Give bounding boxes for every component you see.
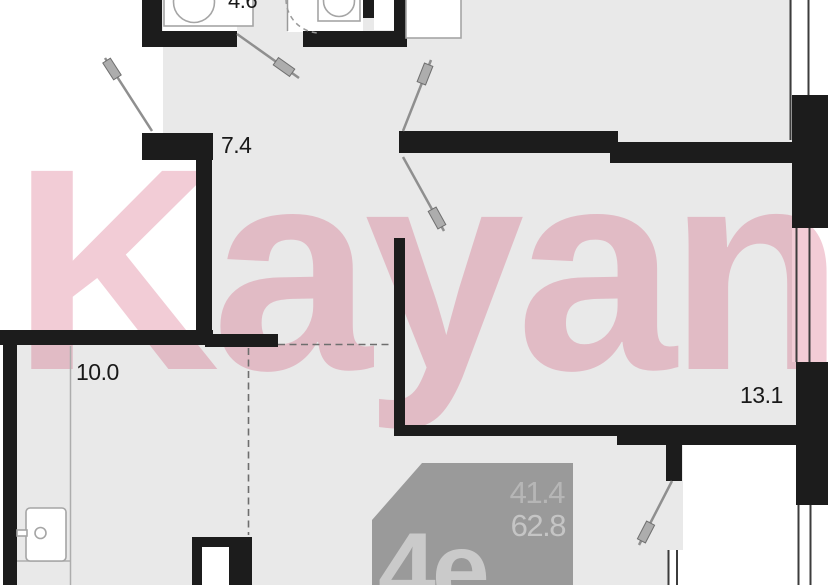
room-area-label-room: 13.1 [740, 384, 783, 407]
door-loggia [637, 481, 672, 545]
wardrobe [406, 0, 461, 38]
door-room-top-right [403, 60, 433, 131]
floor-plan: Kayan [0, 0, 828, 585]
room-area-label-hallway: 7.4 [221, 134, 251, 157]
living-area-value: 41.4 [510, 477, 564, 508]
washer2-icon [318, 0, 360, 21]
room-area-label-kitchen: 10.0 [76, 361, 119, 384]
bottom-door-opening [202, 547, 229, 585]
total-area-value: 62.8 [511, 510, 565, 541]
door-bathroom-left [237, 34, 299, 78]
entrance-door [103, 58, 152, 131]
window [669, 0, 811, 585]
layout-code: 4е [378, 518, 486, 585]
door-room-right [403, 157, 446, 231]
door-swing-arc [286, 0, 320, 33]
zone-divider-dashed [249, 345, 393, 536]
room-area-label-bathroom: 4.6 [228, 0, 257, 12]
sink-icon [17, 508, 66, 561]
